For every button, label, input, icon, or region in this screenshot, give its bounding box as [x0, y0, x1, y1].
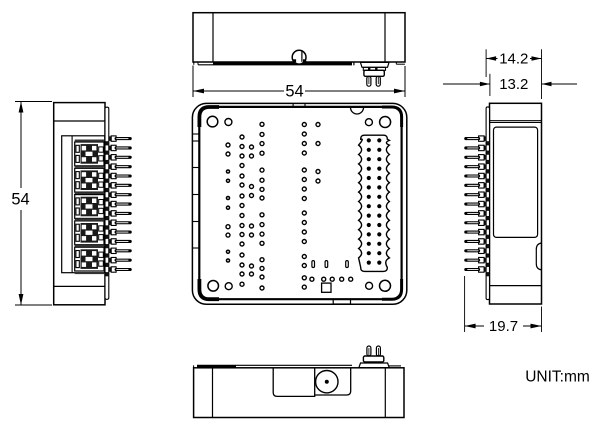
svg-text:UNIT:mm: UNIT:mm	[525, 369, 590, 386]
svg-text:14.2: 14.2	[499, 51, 528, 68]
svg-text:54: 54	[11, 191, 29, 209]
svg-text:19.7: 19.7	[489, 318, 518, 335]
svg-text:13.2: 13.2	[499, 76, 528, 93]
svg-text:54: 54	[285, 83, 303, 101]
